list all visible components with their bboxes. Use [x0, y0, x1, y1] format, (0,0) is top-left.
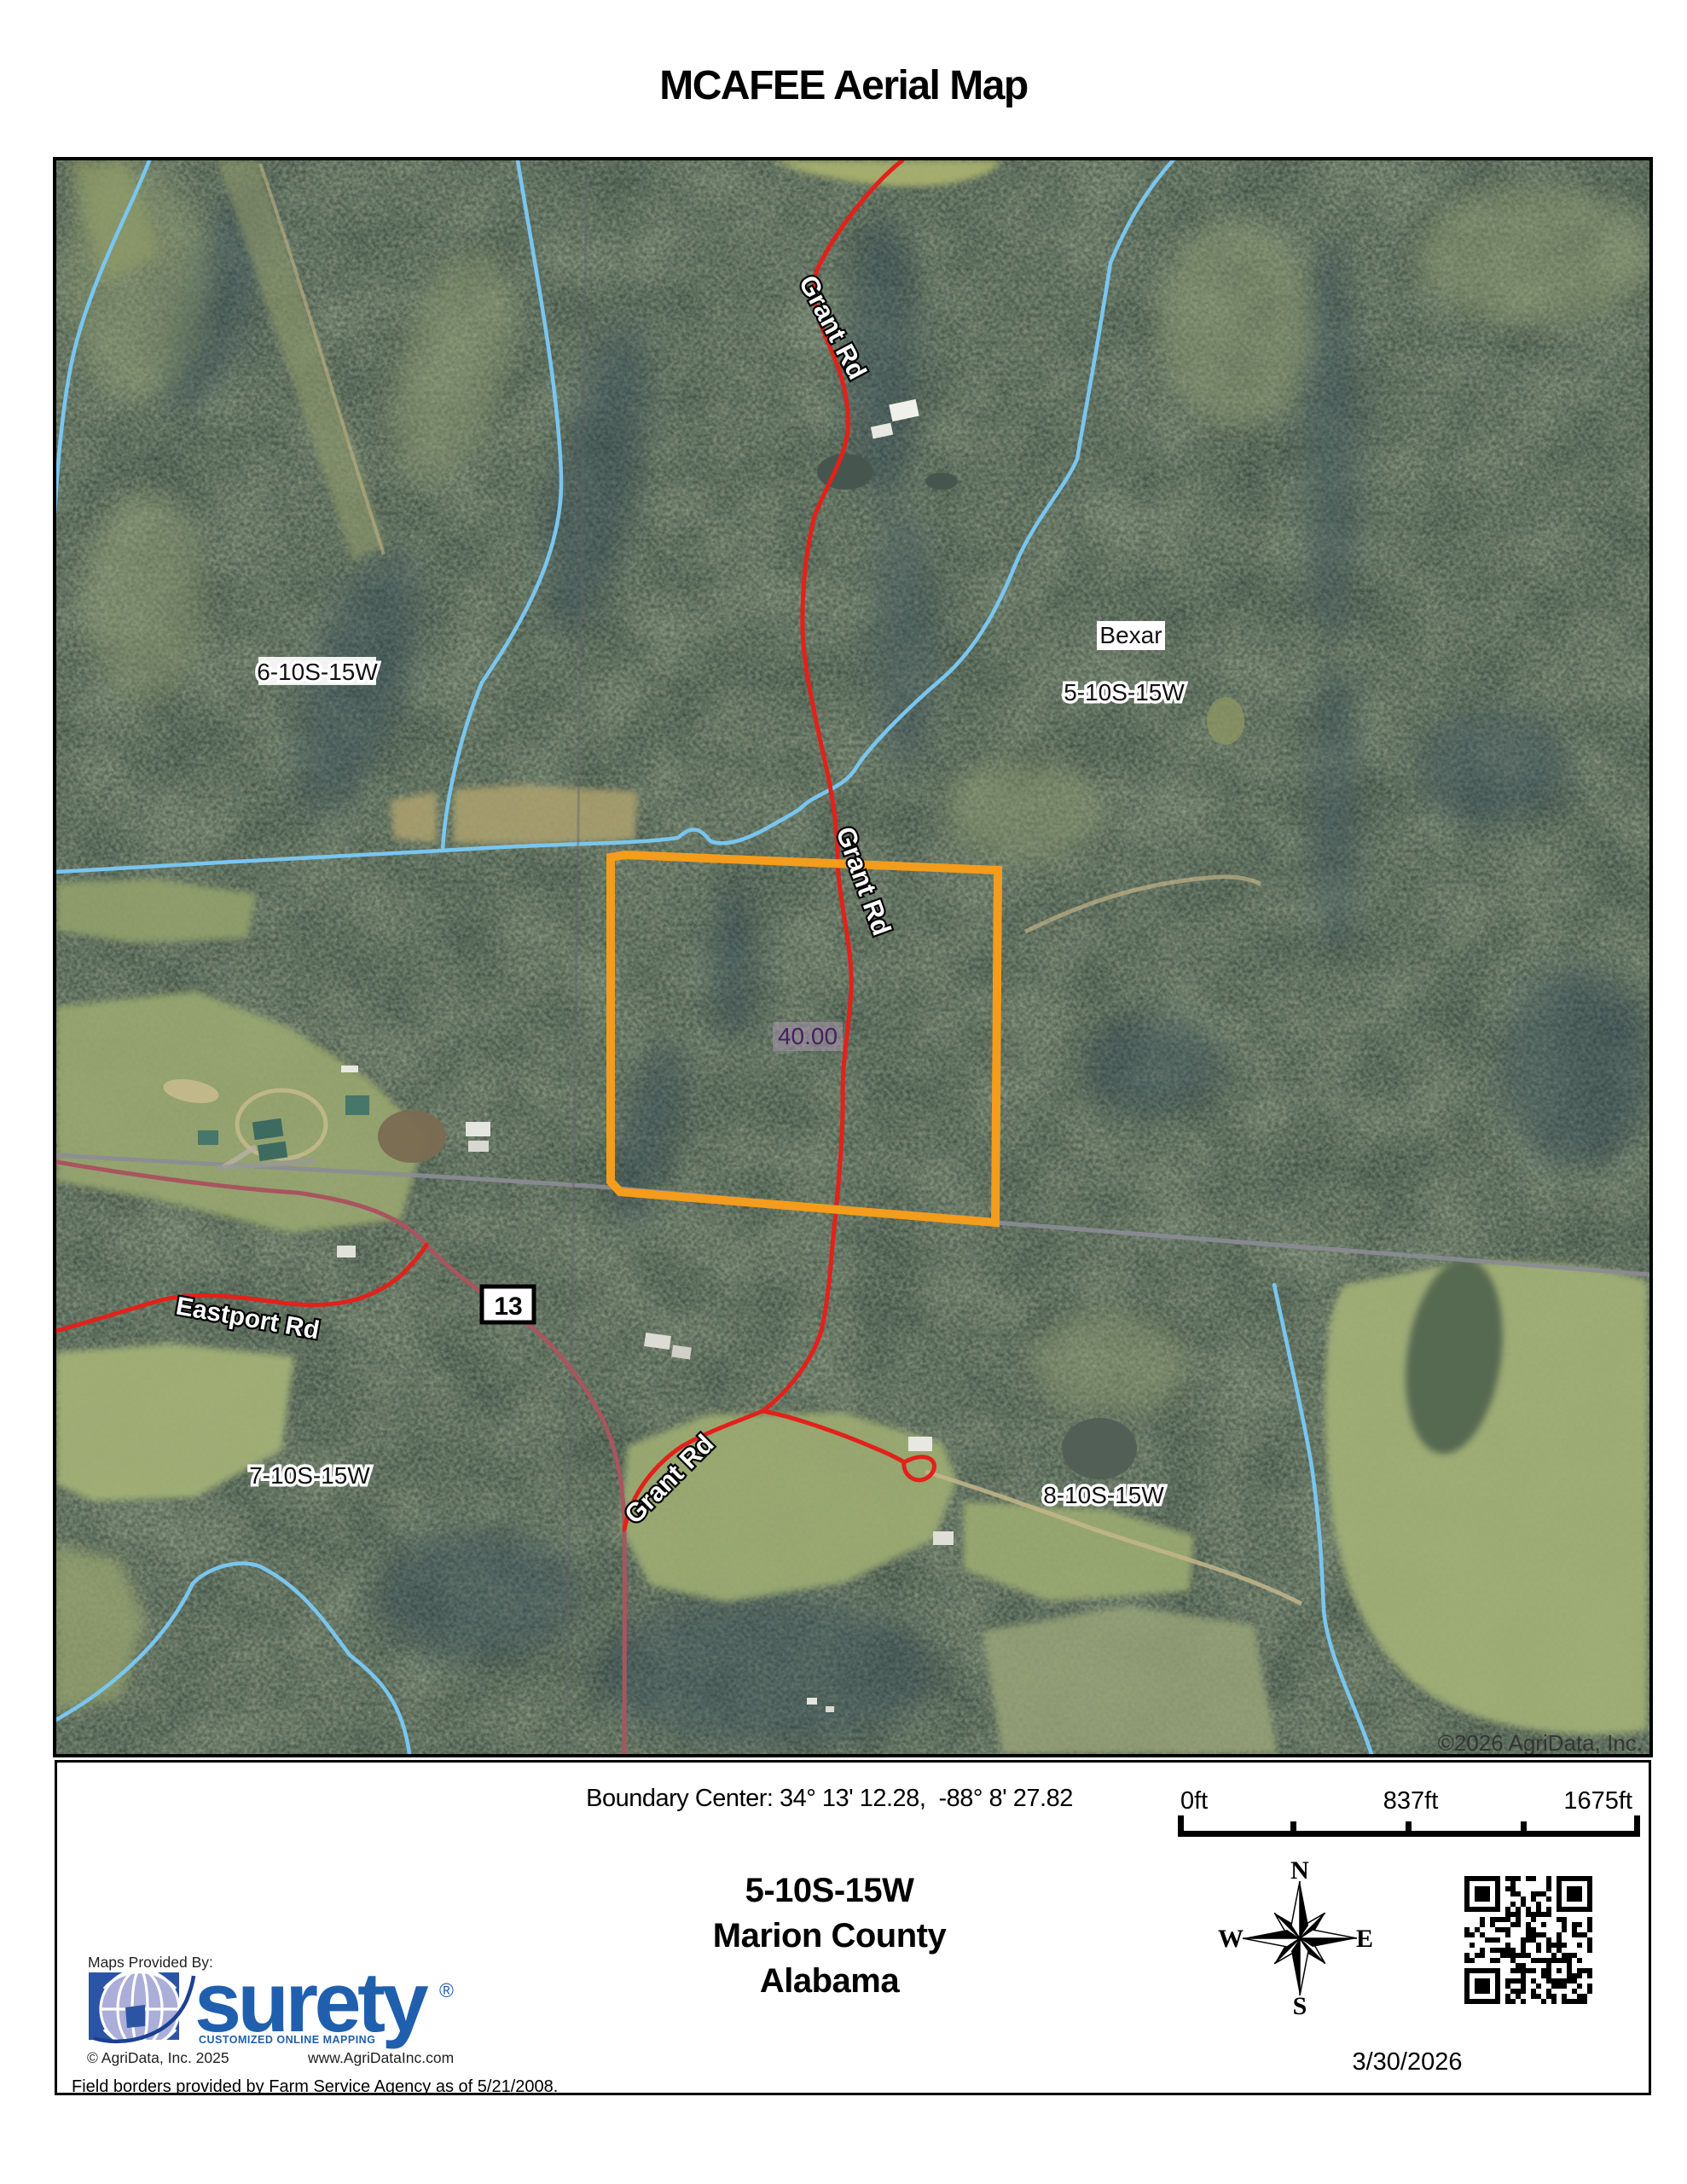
svg-text:E: E: [1356, 1925, 1373, 1953]
svg-text:8-10S-15W: 8-10S-15W: [1043, 1482, 1164, 1508]
svg-text:6-10S-15W: 6-10S-15W: [257, 659, 378, 685]
svg-text:40.00: 40.00: [778, 1023, 838, 1049]
svg-text:W: W: [1218, 1925, 1244, 1953]
svg-text:7-10S-15W: 7-10S-15W: [249, 1462, 370, 1489]
svg-text:©2026 AgriData, Inc.: ©2026 AgriData, Inc.: [1438, 1730, 1643, 1754]
svg-text:5-10S-15W: 5-10S-15W: [1064, 679, 1185, 706]
svg-text:Bexar: Bexar: [1099, 622, 1162, 648]
svg-text:CUSTOMIZED ONLINE MAPPING: CUSTOMIZED ONLINE MAPPING: [199, 2034, 375, 2046]
svg-text:N: N: [1290, 1860, 1309, 1885]
svg-text:S: S: [1293, 1992, 1307, 2020]
svg-text:®: ®: [439, 1979, 454, 2001]
svg-text:13: 13: [494, 1292, 522, 1321]
